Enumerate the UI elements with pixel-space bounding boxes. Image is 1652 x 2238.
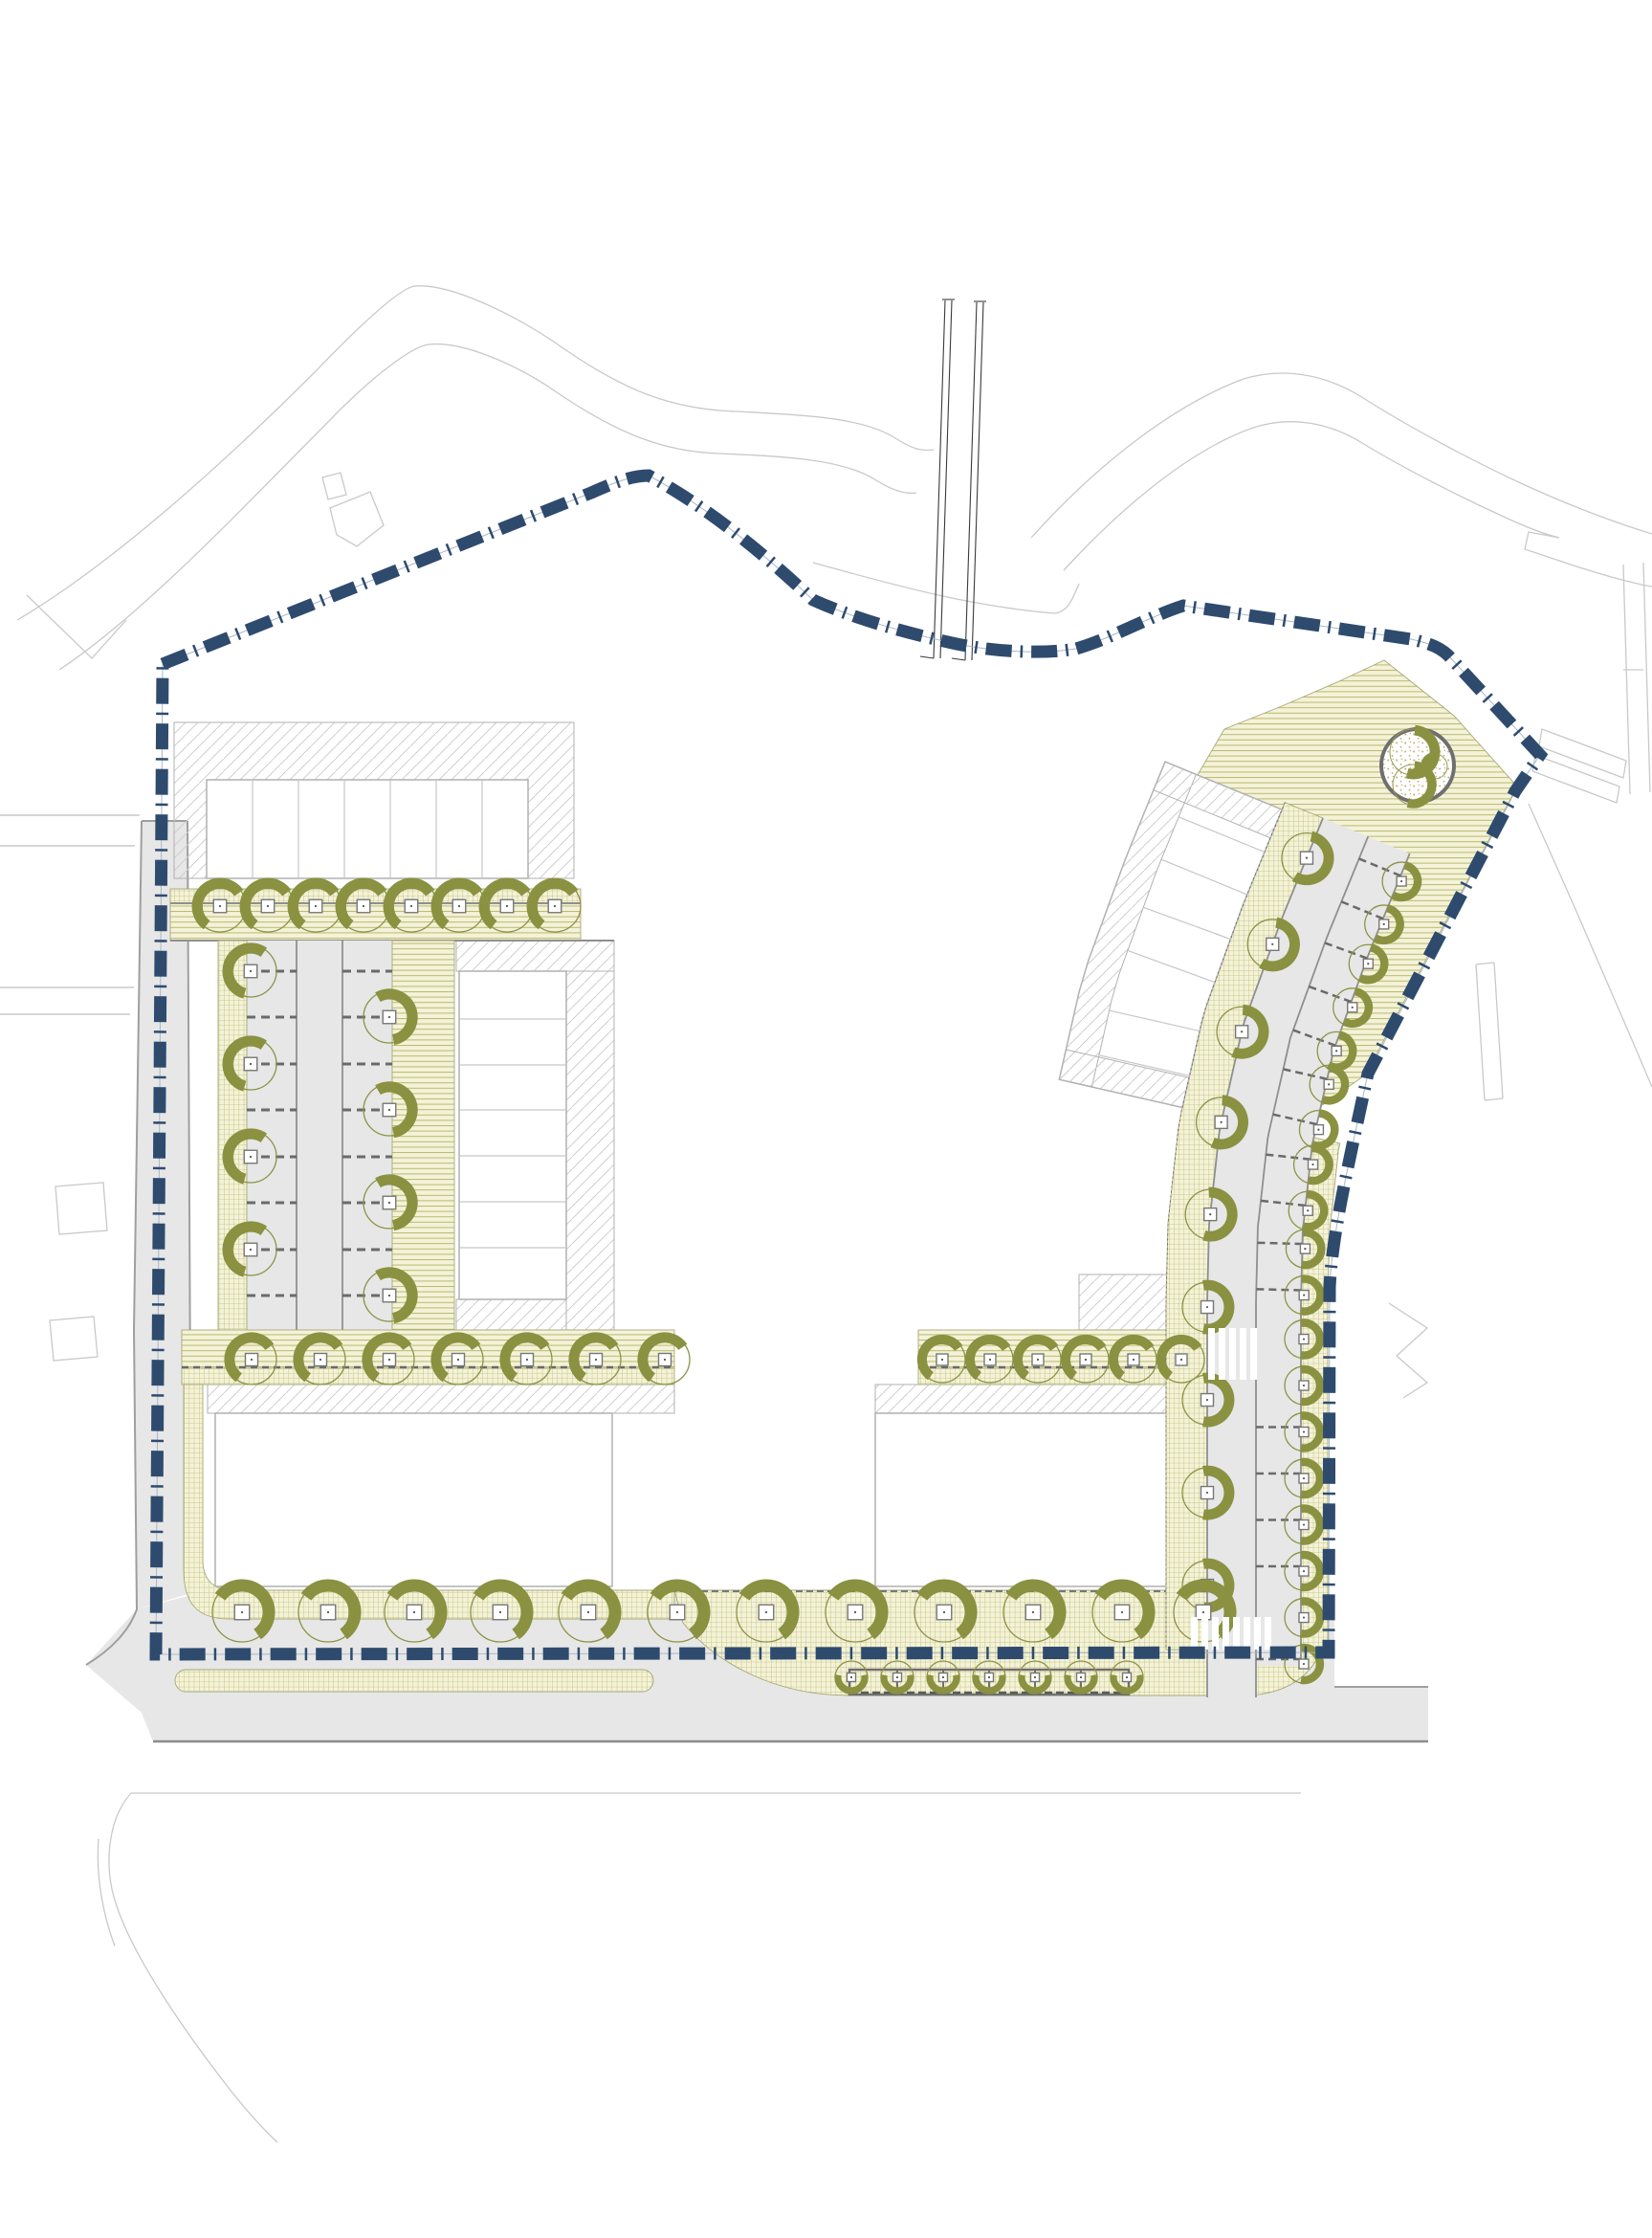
planter-circle <box>1381 729 1454 805</box>
west-parking-court <box>218 941 454 1332</box>
tree-row-top <box>170 880 614 941</box>
tree-row-mid <box>182 1330 1205 1385</box>
plan-root <box>0 286 1652 2142</box>
survey-track <box>920 299 986 660</box>
site-plan-drawing <box>0 0 1652 2238</box>
site-plan-page <box>0 0 1652 2238</box>
